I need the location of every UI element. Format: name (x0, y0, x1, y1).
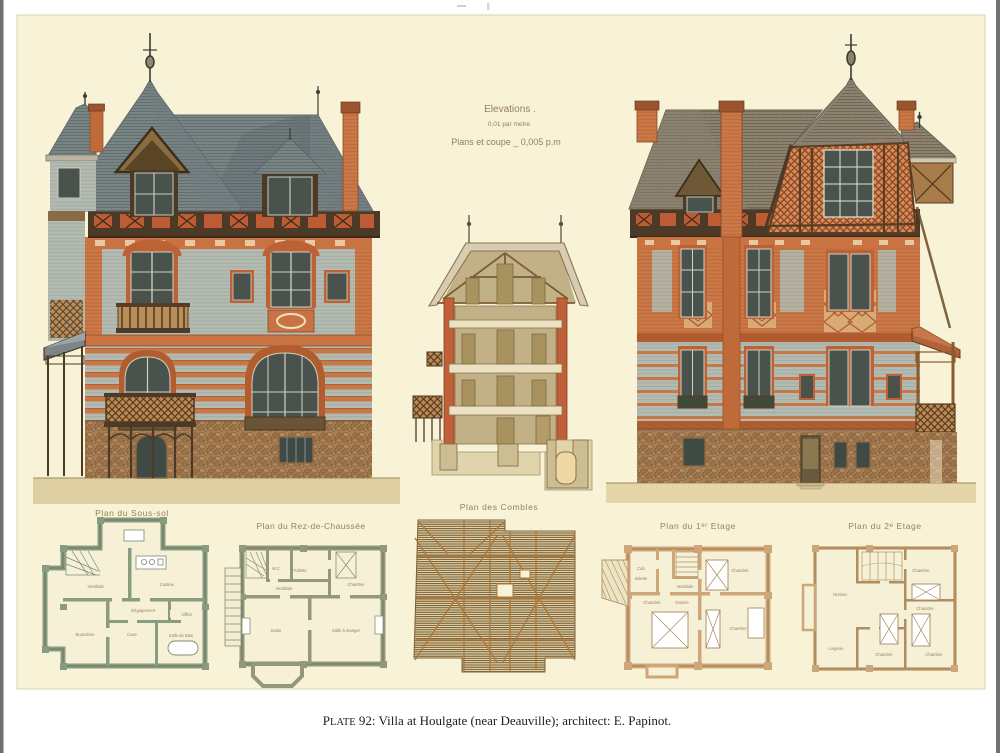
svg-text:W.C: W.C (272, 566, 280, 571)
svg-text:Chambre: Chambre (643, 600, 661, 605)
svg-text:Chambre: Chambre (875, 652, 893, 657)
svg-text:0,01 par metre: 0,01 par metre (488, 121, 531, 128)
svg-text:Plan des Combles: Plan des Combles (460, 502, 539, 512)
svg-text:Chambre: Chambre (731, 568, 749, 573)
svg-text:Cuisine: Cuisine (160, 582, 175, 587)
svg-text:Chambre: Chambre (916, 606, 934, 611)
svg-text:Chambre: Chambre (925, 652, 943, 657)
svg-text:Toilette: Toilette (293, 568, 307, 573)
svg-text:Cab: Cab (637, 566, 645, 571)
svg-text:Vestibule: Vestibule (677, 584, 695, 589)
svg-text:Lingerie: Lingerie (829, 646, 845, 651)
svg-text:PLATE 92: Villa at Houlgate (n: PLATE 92: Villa at Houlgate (near Deauvi… (323, 713, 671, 728)
svg-text:Plan du 1er Etage: Plan du 1er Etage (660, 521, 736, 531)
svg-text:Cave: Cave (127, 632, 137, 637)
svg-text:Chambre: Chambre (347, 582, 365, 587)
svg-text:Plan du 2e Etage: Plan du 2e Etage (848, 521, 921, 531)
svg-text:Elevations .: Elevations . (484, 104, 536, 115)
svg-text:Plans et coupe _ 0,005 p.m: Plans et coupe _ 0,005 p.m (451, 137, 561, 147)
svg-text:Salle de Bain: Salle de Bain (169, 633, 194, 638)
svg-text:Salon: Salon (271, 628, 282, 633)
svg-text:Vestibule: Vestibule (276, 586, 294, 591)
svg-text:toilette: toilette (635, 576, 648, 581)
svg-text:Plan du Sous-sol: Plan du Sous-sol (95, 508, 169, 518)
svg-text:Galerie: Galerie (675, 600, 689, 605)
svg-text:Plan du Rez-de-Chaussée: Plan du Rez-de-Chaussée (257, 521, 366, 531)
svg-text:Office: Office (182, 612, 194, 617)
svg-text:Salle à manger: Salle à manger (332, 628, 361, 633)
svg-text:Chambre: Chambre (729, 626, 747, 631)
svg-text:Vestibule: Vestibule (88, 584, 106, 589)
svg-text:Grenier: Grenier (833, 592, 848, 597)
svg-text:Chambre: Chambre (912, 568, 930, 573)
svg-text:Dégagement: Dégagement (131, 608, 156, 613)
svg-text:Buanderie: Buanderie (75, 632, 95, 637)
